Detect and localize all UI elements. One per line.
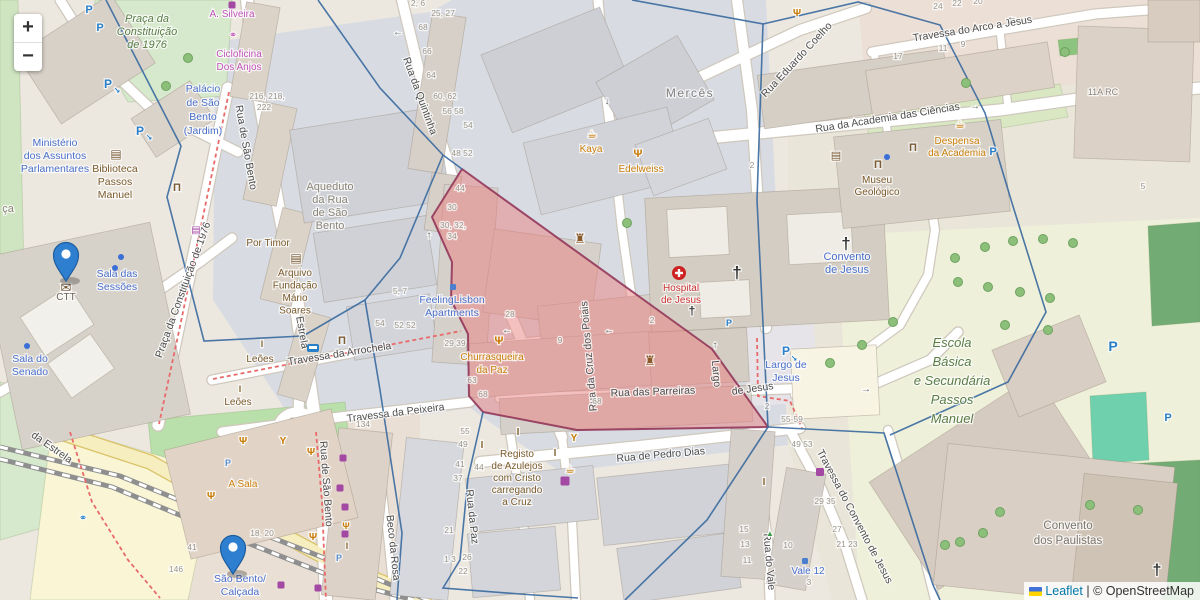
house-number: 2 <box>750 160 755 170</box>
house-number: 68 <box>478 389 488 399</box>
parking-arrow-icon: ↘ <box>791 354 798 363</box>
house-number: 29 39 <box>444 338 466 348</box>
escola-label: Escola <box>932 335 971 350</box>
sala-senado-label: Sala do <box>12 353 48 365</box>
house-number: 34 <box>447 231 457 241</box>
tree-icon <box>1009 237 1018 246</box>
parking-meter-icon: P <box>726 318 732 328</box>
bar-icon: Y <box>571 433 578 444</box>
ministerio-label: Parlamentares <box>21 163 89 175</box>
house-number: 66 <box>422 46 432 56</box>
castle-icon: ♜ <box>574 231 586 246</box>
street-name-label: Largo <box>709 360 723 388</box>
por-timor-label: Por Timor <box>246 238 290 249</box>
house-number: 21 23 <box>836 539 858 549</box>
house-number: 24 <box>933 1 943 11</box>
praca-constituicao-label: de 1976 <box>127 39 168 51</box>
poi-dot-icon <box>118 254 124 260</box>
zoom-in-button[interactable]: + <box>14 14 42 43</box>
palacio-label: Bento <box>189 111 217 123</box>
car-shop-icon <box>816 468 824 476</box>
shop-icon <box>342 504 349 511</box>
arquivo-label: Fundação <box>273 281 318 292</box>
tree-icon <box>826 359 835 368</box>
building <box>790 345 880 419</box>
praca-constituicao-label: Praça da <box>125 13 169 25</box>
house-number: 64 <box>426 70 436 80</box>
building <box>699 280 751 319</box>
escola-label: Básica <box>932 354 971 369</box>
building <box>1148 0 1200 42</box>
house-number: 222 <box>257 102 271 112</box>
leaflet-link[interactable]: Leaflet <box>1045 584 1083 598</box>
churrasqueira-label: Churrasqueira <box>460 352 524 363</box>
biblioteca-label: Biblioteca <box>92 163 138 175</box>
parking-icon: P <box>104 77 112 91</box>
house-number: 68 <box>592 396 602 406</box>
house-number: 54 <box>463 120 473 130</box>
oneway-arrow-icon: ↑ <box>713 340 718 351</box>
house-number: 60, 62 <box>433 91 457 101</box>
house-number: 55-59 <box>781 414 803 424</box>
tree-icon <box>1061 48 1070 57</box>
house-number: 41 <box>187 542 197 552</box>
shop-icon <box>342 531 349 538</box>
house-number: 11 <box>743 555 752 565</box>
house-number: 49 53 <box>791 439 813 449</box>
tree-icon <box>184 54 193 63</box>
sala-sessoes-label: Sessões <box>97 281 137 293</box>
a-sala-label: A Sala <box>229 479 258 490</box>
parking-icon: P <box>225 458 231 468</box>
house-number: 216, 218, <box>249 91 284 101</box>
archive-icon: ▤ <box>290 251 301 265</box>
tree-icon <box>984 283 993 292</box>
partial-label: ça <box>2 203 15 215</box>
despensa-label: Despensa <box>934 136 979 147</box>
house-number: 63 <box>467 375 477 385</box>
cicloficina-label: Dos Anjos <box>216 62 261 73</box>
oneway-arrow-icon: → <box>970 101 980 112</box>
house-number: 44 <box>455 183 465 193</box>
largo-jesus-label: Jesus <box>772 372 799 384</box>
tree-icon <box>858 341 867 350</box>
house-number: 11 <box>939 43 948 53</box>
restaurant-icon: Ψ <box>309 532 317 543</box>
house-number: 37 <box>453 473 463 483</box>
building <box>834 119 1011 228</box>
house-number: 25, 27 <box>431 8 455 18</box>
house-number: 21 <box>444 525 454 535</box>
house-number: 2 <box>650 315 655 325</box>
restaurant-icon: Ψ <box>495 335 504 347</box>
house-number: 3 <box>807 577 812 587</box>
castle-icon: ♜ <box>644 353 656 368</box>
monument-icon: Ι <box>261 339 264 349</box>
mast-icon: ▲ <box>766 529 774 538</box>
tree-icon <box>1134 506 1143 515</box>
restaurant-icon: Ψ <box>239 436 247 447</box>
registo-azulejos-label: de Azulejos <box>491 461 542 472</box>
cafe-icon: ☕ <box>587 129 597 141</box>
escola-label: e Secundária <box>914 373 991 388</box>
sao-bento-station-label: Calçada <box>221 586 260 598</box>
kaya-label: Kaya <box>580 144 603 155</box>
dark-green-right <box>1148 222 1200 326</box>
clothes-shop-icon <box>229 2 236 9</box>
house-number: 2 <box>765 401 770 411</box>
ministerio-label: Ministério <box>33 137 78 149</box>
house-number: 9 <box>961 39 966 49</box>
house-number: 30, 32, <box>440 220 466 230</box>
feelinglisbon-label: FeelingLisbon <box>419 294 485 306</box>
house-number: 55 <box>460 426 470 436</box>
house-number: 5 <box>1141 181 1146 191</box>
house-number: 18, 20 <box>250 528 274 538</box>
monument-icon: Ι <box>481 440 484 451</box>
house-number: 56 58 <box>442 106 464 116</box>
registo-azulejos-label: carregando <box>492 485 543 496</box>
registo-azulejos-label: com Cristo <box>493 473 541 484</box>
leoes-label: Leões <box>246 354 273 365</box>
largo-jesus-label: Largo de <box>765 359 807 371</box>
monument-icon: Ι <box>554 448 557 459</box>
street-name-label: Mercês <box>666 86 714 100</box>
bar-icon: Y <box>280 436 287 447</box>
tree-icon <box>1001 321 1010 330</box>
aqueduto-label: da Rua <box>312 194 348 206</box>
building <box>467 526 560 597</box>
tree-icon <box>951 254 960 263</box>
ukraine-flag-icon <box>1029 587 1042 596</box>
edelweiss-label: Edelweiss <box>618 164 663 175</box>
restaurant-icon: Ψ <box>307 447 315 458</box>
building <box>667 206 729 257</box>
parking-icon: P <box>336 553 342 563</box>
attribution-bar: Leaflet | © OpenStreetMap <box>1024 582 1200 600</box>
fast-food-icon: Ψ <box>342 521 349 531</box>
parking-icon: P <box>1108 338 1117 354</box>
poi-dot-icon <box>884 154 890 160</box>
arquivo-label: Mário <box>282 293 307 304</box>
house-number: 1 3 <box>444 554 456 564</box>
house-number: 49 <box>458 439 468 449</box>
tree-icon <box>981 243 990 252</box>
museum-icon: Π <box>173 182 181 194</box>
sala-senado-label: Senado <box>12 366 48 378</box>
house-number: 15 <box>739 524 749 534</box>
library-icon: ▤ <box>110 147 121 161</box>
poi-dot-icon <box>24 343 30 349</box>
tree-icon <box>162 82 171 91</box>
church-cross-icon: † <box>732 263 741 282</box>
vale12-label: Vale 12 <box>791 566 825 577</box>
house-number: 2, 6 <box>411 0 425 8</box>
oneway-arrow-icon: ← <box>393 27 403 38</box>
escola-label: Passos <box>931 392 974 407</box>
aqueduto-label: Aqueduto <box>306 181 353 193</box>
convento-paulistas-label: dos Paulistas <box>1034 535 1103 547</box>
aqueduto-label: Bento <box>316 220 345 232</box>
oneway-arrow-icon: ← <box>1007 12 1017 23</box>
arquivo-label: Arquivo <box>278 268 312 279</box>
tree-icon <box>941 541 950 550</box>
aqueduto-label: de São <box>313 207 348 219</box>
parking-icon: P <box>989 146 996 158</box>
tree-icon <box>954 278 963 287</box>
arquivo-label: Soares <box>279 306 311 317</box>
museum-icon: Π <box>874 159 882 171</box>
house-number: 44 <box>474 462 484 472</box>
cicloficina-label: Cicloficina <box>216 49 262 60</box>
attribution-separator: | <box>1083 584 1093 598</box>
tree-icon <box>889 318 898 327</box>
house-number: 41 <box>455 459 465 469</box>
bicycle-icon: ⚭ <box>79 513 87 524</box>
church-cross-icon: † <box>841 234 850 253</box>
cafe-icon: ☕ <box>565 464 575 476</box>
house-number: 27 <box>832 524 842 534</box>
parking-icon: P <box>85 4 92 16</box>
street-name-label: 11A RC <box>1088 87 1119 97</box>
bicycle-icon: ⚭ <box>229 30 237 41</box>
despensa-label: da Academia <box>928 148 986 159</box>
escola-label: Manuel <box>931 411 975 426</box>
monument-icon: Ι <box>517 427 520 438</box>
house-number: 54 <box>375 318 385 328</box>
tree-icon <box>1039 235 1048 244</box>
house-number: 48 52 <box>451 148 473 158</box>
palacio-label: de São <box>186 97 219 109</box>
parking-icon: P <box>96 22 103 34</box>
monument-icon: Ι <box>239 384 242 394</box>
oneway-arrow-icon: ← <box>502 325 512 336</box>
house-number: 10 <box>783 540 793 550</box>
map-canvas[interactable]: Rua de São BentoRua de São BentoPraça da… <box>0 0 1200 600</box>
house-number: 28 <box>505 309 515 319</box>
palacio-label: (Jardim) <box>184 125 223 137</box>
churrasqueira-label: da Paz <box>476 365 507 376</box>
books-icon: ▤ <box>831 150 841 162</box>
monument-icon: Ι <box>346 541 349 551</box>
museu-geologico-label: Geológico <box>854 187 899 198</box>
registo-azulejos-label: Registo <box>500 449 534 460</box>
biblioteca-label: Manuel <box>98 189 132 201</box>
tree-icon <box>1046 294 1055 303</box>
tree-icon <box>956 538 965 547</box>
tree-icon <box>1086 501 1095 510</box>
openstreetmap-link[interactable]: © OpenStreetMap <box>1093 584 1194 598</box>
tree-icon <box>1016 288 1025 297</box>
oneway-arrow-icon: ↓ <box>605 96 610 107</box>
praca-constituicao-label: Constituição <box>117 26 178 38</box>
parking-icon: P <box>1164 412 1171 424</box>
zoom-out-button[interactable]: − <box>14 43 42 71</box>
feelinglisbon-label: Apartments <box>425 307 479 319</box>
shop-icon <box>315 585 322 592</box>
house-number: 52 52 <box>394 320 416 330</box>
house-number: 22 <box>952 0 962 8</box>
building <box>1072 473 1177 594</box>
registo-azulejos-label: a Cruz <box>502 497 531 508</box>
cafe-icon: ☕ <box>955 119 965 131</box>
house-number: 30 <box>447 202 457 212</box>
tree-icon <box>623 219 632 228</box>
house-number: 146 <box>169 564 183 574</box>
house-number: 5, 7 <box>393 286 407 296</box>
tree-icon <box>996 508 1005 517</box>
parking-arrow-icon: ↘ <box>114 86 121 95</box>
shop-icon <box>278 582 285 589</box>
house-number: 68 <box>418 22 428 32</box>
restaurant-icon: Ψ <box>634 148 643 160</box>
oneway-arrow-icon: ↑ <box>427 230 432 241</box>
zoom-control: + − <box>14 14 42 71</box>
house-number: 17 <box>893 51 903 61</box>
parking-arrow-icon: ↘ <box>146 133 153 142</box>
house-number: 26 <box>462 552 472 562</box>
restaurant-icon: Ψ <box>793 8 801 19</box>
poi-dot-icon <box>112 265 118 271</box>
museum-icon: Π <box>338 335 346 347</box>
house-number: 20 <box>973 0 983 6</box>
tree-icon <box>979 529 988 538</box>
map-tiles[interactable]: Rua de São BentoRua de São BentoPraça da… <box>0 0 1200 600</box>
house-number: 22 <box>458 566 468 576</box>
oneway-arrow-icon: → <box>861 384 871 395</box>
shop-icon <box>337 485 344 492</box>
hostel-icon <box>802 558 808 564</box>
ministerio-label: dos Assuntos <box>24 150 86 162</box>
museu-geologico-label: Museu <box>862 175 892 186</box>
biblioteca-label: Passos <box>98 176 132 188</box>
tree-icon <box>1069 239 1078 248</box>
house-number: 9 <box>558 335 563 345</box>
palacio-label: Palácio <box>186 83 221 95</box>
hospital-label: Hospital <box>663 283 699 294</box>
silveira-label: A. Silveira <box>209 9 254 20</box>
convento-jesus-label: de Jesus <box>825 264 870 276</box>
parking-icon: P <box>782 344 790 358</box>
parking-icon: P <box>136 124 144 138</box>
house-number: 29 35 <box>814 496 836 506</box>
oneway-arrow-icon: ← <box>604 325 614 336</box>
books-shop-icon: ▤ <box>191 225 200 236</box>
hospital-icon <box>672 266 686 280</box>
church-cross-icon: † <box>689 304 696 318</box>
shop-icon <box>340 455 347 462</box>
museum-icon: Π <box>909 142 917 154</box>
convento-paulistas-label: Convento <box>1043 520 1092 532</box>
house-number: 13 <box>740 539 750 549</box>
house-number: 134 <box>356 419 370 429</box>
tree-icon <box>962 79 971 88</box>
leoes-label-2: Leões <box>224 397 251 408</box>
church-cross-icon: † <box>1153 562 1162 579</box>
tree-icon <box>1044 326 1053 335</box>
swimming-pool <box>1090 392 1149 464</box>
monument-icon: Ι <box>763 477 766 488</box>
bus-stop-icon <box>307 344 319 352</box>
restaurant-icon: Ψ <box>207 491 215 502</box>
guesthouse-icon <box>450 284 456 290</box>
laundry-icon <box>561 477 570 486</box>
